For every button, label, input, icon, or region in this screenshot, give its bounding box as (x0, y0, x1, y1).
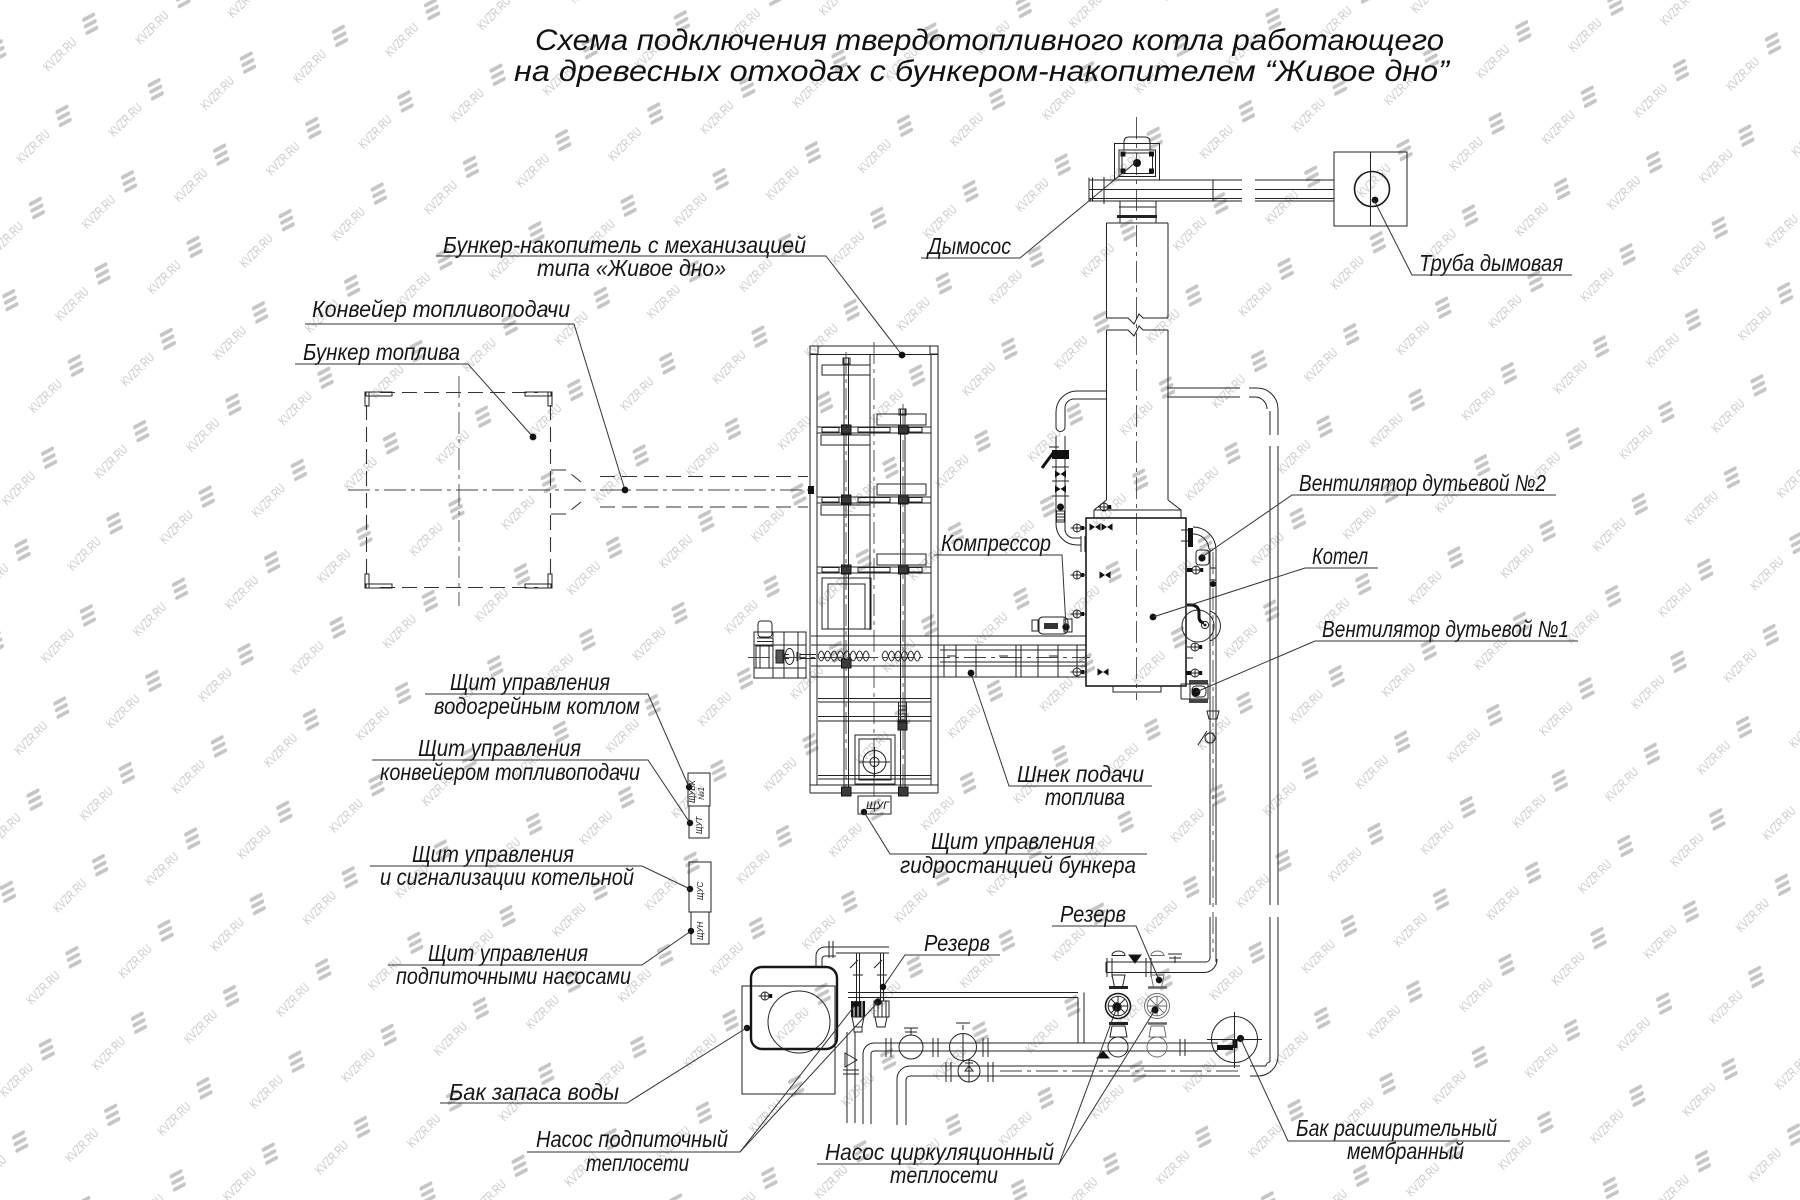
svg-text:Насос подпиточный: Насос подпиточный (536, 1126, 728, 1152)
svg-text:Резерв: Резерв (1060, 901, 1126, 927)
svg-text:Бункер топлива: Бункер топлива (303, 339, 460, 365)
svg-text:Котел: Котел (1312, 543, 1368, 569)
svg-text:Бак запаса воды: Бак запаса воды (449, 1079, 619, 1105)
svg-text:№1: №1 (697, 787, 706, 800)
svg-text:Дымосос: Дымосос (925, 233, 1011, 259)
svg-text:Вентилятор дутьевой №2: Вентилятор дутьевой №2 (1299, 470, 1546, 496)
svg-text:Схема подключения твердотоплив: Схема подключения твердотопливного котла… (535, 24, 1444, 57)
svg-text:Труба дымовая: Труба дымовая (1419, 250, 1563, 276)
svg-text:гидростанцией бункера: гидростанцией бункера (900, 852, 1136, 878)
svg-text:подпиточными насосами: подпиточными насосами (396, 963, 631, 989)
svg-text:Щит управления: Щит управления (931, 828, 1095, 854)
svg-text:теплосети: теплосети (586, 1150, 689, 1176)
svg-text:Вентилятор дутьевой №1: Вентилятор дутьевой №1 (1322, 616, 1569, 642)
svg-text:на древесных отходах с бункеро: на древесных отходах с бункером-накопите… (514, 55, 1451, 88)
svg-text:теплосети: теплосети (890, 1162, 998, 1188)
svg-text:ЩУС: ЩУС (696, 882, 705, 900)
svg-text:мембранный: мембранный (1347, 1138, 1464, 1164)
svg-text:и сигнализации котельной: и сигнализации котельной (380, 864, 634, 890)
svg-text:конвейером топливоподачи: конвейером топливоподачи (380, 759, 640, 785)
svg-text:ЩУВК: ЩУВК (688, 779, 697, 803)
svg-text:Щит управления: Щит управления (418, 735, 581, 761)
svg-text:Щит управления: Щит управления (450, 669, 610, 695)
svg-text:водогрейным котлом: водогрейным котлом (434, 693, 640, 719)
svg-text:ЩУТ: ЩУТ (695, 816, 704, 834)
svg-text:ЩУГ: ЩУГ (866, 800, 890, 812)
svg-text:Резерв: Резерв (924, 930, 990, 956)
svg-text:Конвейер топливоподачи: Конвейер топливоподачи (312, 296, 570, 322)
svg-text:ЩУН: ЩУН (696, 922, 705, 940)
svg-text:топлива: топлива (1045, 784, 1125, 810)
svg-text:типа «Живое дно»: типа «Живое дно» (537, 255, 726, 281)
svg-text:Компрессор: Компрессор (941, 530, 1051, 556)
